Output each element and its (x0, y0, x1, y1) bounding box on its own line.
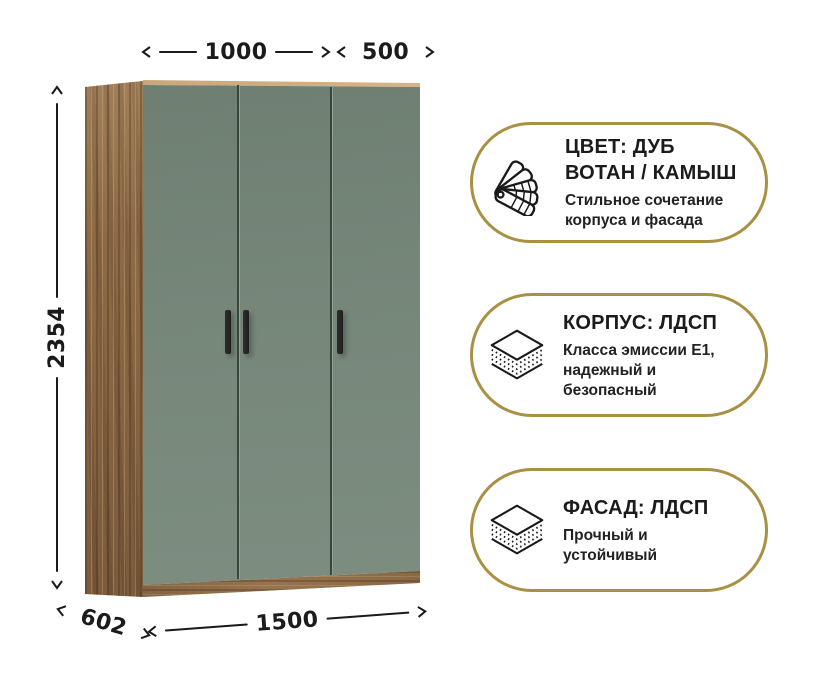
color-swatch-fan-icon (485, 150, 551, 216)
dimension-depth-602: 602 (51, 596, 136, 642)
arrow-left-icon (52, 600, 71, 620)
badge-subtitle: Прочный и устойчивый (563, 526, 749, 566)
badge-title: ФАСАД: ЛДСП (563, 495, 749, 521)
badge-subtitle: Стильное сочетание корпуса и фасада (565, 191, 749, 231)
door-handle (243, 310, 249, 354)
product-infographic: 1000 500 2354 602 (0, 0, 816, 700)
dimension-line (56, 103, 58, 298)
door-gap (237, 85, 240, 579)
arrow-right-icon (422, 44, 437, 60)
badge-subtitle: Класса эмиссии Е1, надежный и безопасный (563, 341, 749, 401)
dimension-line (134, 630, 135, 632)
arrow-down-icon (49, 577, 65, 592)
feature-badge-korpus: КОРПУС: ЛДСП Класса эмиссии Е1, надежный… (470, 293, 768, 417)
feature-badge-fasad: ФАСАД: ЛДСП Прочный и устойчивый (470, 468, 768, 592)
door-handle (225, 310, 231, 354)
layers-icon (485, 326, 549, 384)
dimension-line (159, 51, 197, 53)
door-gap (330, 87, 333, 575)
badge-title: ЦВЕТ: ДУБ ВОТАН / КАМЫШ (565, 134, 749, 186)
dimension-label: 602 (75, 603, 133, 642)
dimension-line (165, 623, 248, 631)
arrow-left-icon (334, 44, 349, 60)
dimension-line (326, 612, 409, 620)
feature-badge-color: ЦВЕТ: ДУБ ВОТАН / КАМЫШ Стильное сочетан… (470, 122, 768, 243)
dimension-width-500: 500 (334, 40, 426, 64)
arrow-left-icon (144, 623, 160, 640)
arrow-right-icon (318, 44, 333, 60)
layers-icon (485, 501, 549, 559)
dimension-height-2354: 2354 (45, 83, 69, 592)
wardrobe-illustration (85, 78, 420, 600)
dimension-label: 1500 (252, 607, 322, 637)
dimension-line (73, 613, 74, 615)
dimension-label: 1000 (202, 40, 271, 65)
arrow-right-icon (414, 603, 430, 620)
dimension-label: 2354 (45, 303, 70, 372)
arrow-left-icon (139, 44, 154, 60)
arrow-up-icon (49, 83, 65, 98)
dimension-line (275, 51, 313, 53)
dimension-width-1000: 1000 (139, 40, 333, 64)
badge-title: КОРПУС: ЛДСП (563, 310, 749, 336)
dimension-width-1500: 1500 (144, 599, 430, 644)
dimension-label: 500 (359, 40, 412, 65)
door-handle (337, 310, 343, 354)
dimension-line (56, 377, 58, 572)
